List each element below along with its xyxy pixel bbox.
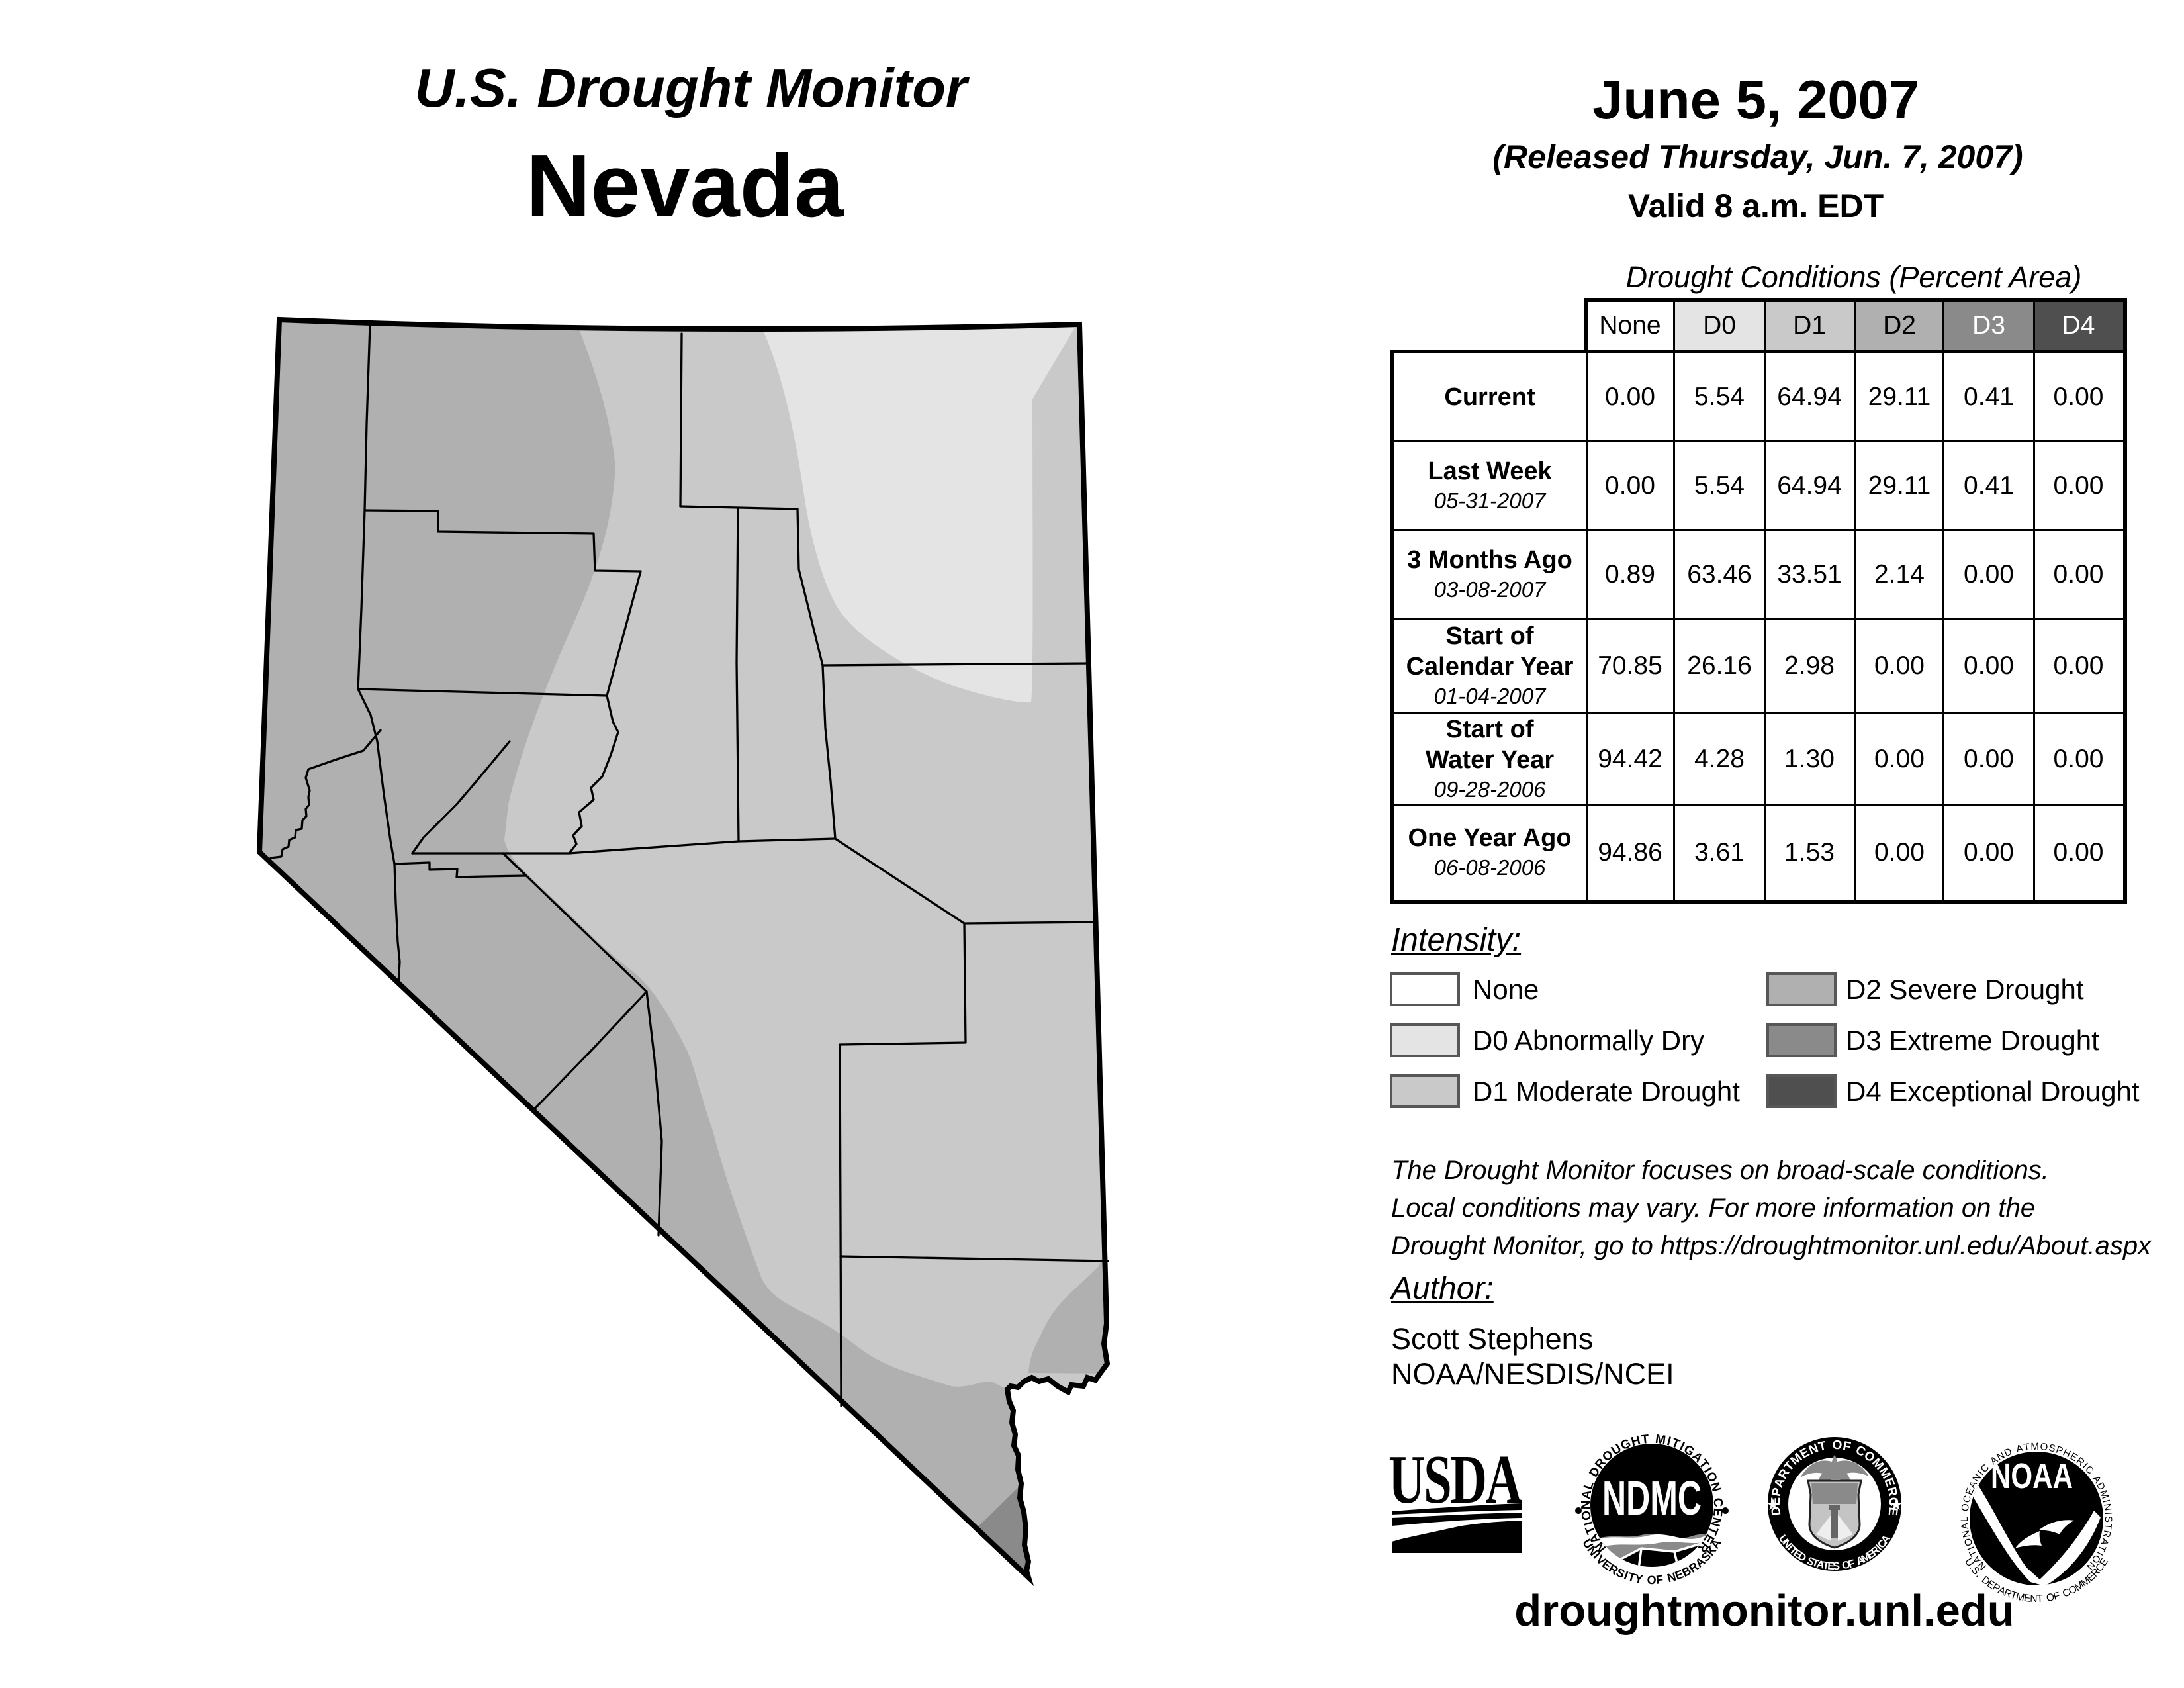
svg-text:M: M <box>1655 1432 1666 1448</box>
svg-text:T: T <box>2023 1441 2030 1453</box>
svg-text:S: S <box>2103 1516 2114 1523</box>
svg-text:NOAA: NOAA <box>1991 1456 2073 1496</box>
svg-text:E: E <box>1769 1497 1784 1506</box>
svg-text:F: F <box>1655 1573 1664 1587</box>
svg-text:E: E <box>1886 1506 1900 1516</box>
svg-text:L: L <box>1581 1479 1597 1491</box>
svg-text:NDMC: NDMC <box>1602 1472 1702 1525</box>
svg-text:C: C <box>1711 1497 1725 1507</box>
svg-text:L: L <box>1959 1517 1970 1522</box>
svg-text:M: M <box>2030 1441 2039 1452</box>
svg-text:O: O <box>1832 1438 1843 1453</box>
svg-text:D: D <box>1769 1505 1784 1516</box>
svg-text:N: N <box>1960 1529 1973 1538</box>
svg-text:I: I <box>2103 1511 2114 1515</box>
svg-text:N: N <box>1579 1500 1593 1509</box>
svg-text:A: A <box>1959 1523 1971 1530</box>
svg-text:S: S <box>1833 1561 1840 1572</box>
svg-text:T: T <box>1641 1432 1650 1447</box>
svg-text:O: O <box>2040 1441 2048 1453</box>
svg-text:Y: Y <box>1634 1571 1644 1586</box>
svg-text:C: C <box>1886 1497 1901 1507</box>
svg-text:N: N <box>2101 1503 2114 1511</box>
